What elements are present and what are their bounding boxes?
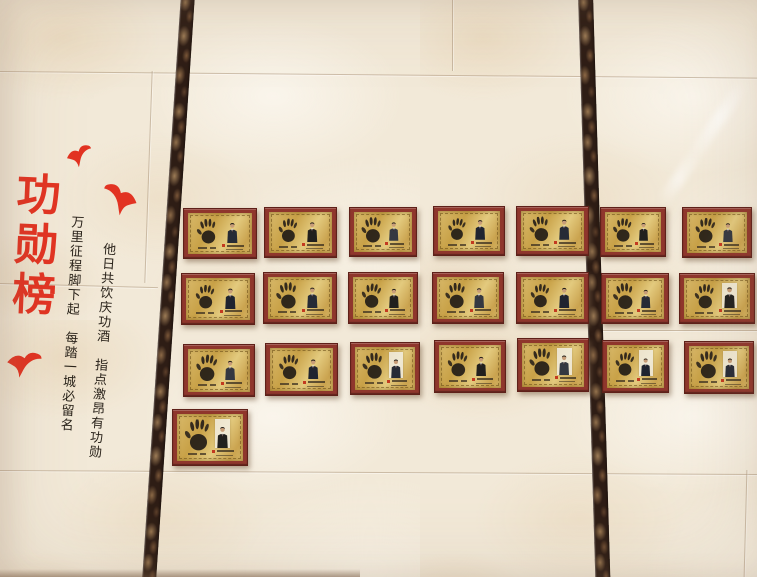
gold-plate	[689, 346, 749, 389]
member-photo	[304, 282, 319, 308]
handprint-icon	[275, 218, 302, 245]
handprint-plaque	[601, 273, 669, 324]
member-photo	[215, 419, 230, 448]
red-mark	[387, 380, 390, 383]
handprint-plaque	[350, 342, 420, 395]
handprint-icon	[694, 351, 721, 382]
red-mark	[302, 243, 305, 246]
tile-glare	[657, 77, 751, 207]
handprint-icon	[360, 352, 388, 383]
hand-caption-text	[616, 380, 634, 382]
red-mark	[635, 242, 638, 245]
gold-plate	[437, 277, 499, 319]
handprint-icon	[358, 282, 385, 311]
gold-plate	[605, 212, 661, 252]
handprint-plaque	[600, 207, 666, 257]
member-photo	[387, 282, 401, 308]
member-photo	[224, 218, 239, 243]
red-mark	[719, 309, 722, 312]
handprint-icon	[193, 217, 223, 247]
handprint-icon	[182, 419, 212, 453]
red-bird-icon	[98, 180, 141, 218]
member-photo	[639, 283, 652, 308]
handprint-icon	[691, 284, 719, 311]
handprint-icon	[692, 217, 719, 246]
red-mark	[637, 309, 640, 312]
member-photo	[222, 283, 237, 309]
member-photo	[474, 350, 488, 377]
photo-caption-text	[719, 309, 741, 315]
hand-caption-text	[699, 381, 717, 383]
handprint-plaque	[433, 206, 505, 256]
photo-caption-text	[222, 244, 244, 250]
hand-caption-text	[278, 311, 296, 313]
photo-caption-text	[721, 379, 741, 385]
member-photo	[721, 217, 735, 242]
tile-seam	[744, 470, 748, 577]
member-photo	[305, 217, 319, 242]
member-photo	[389, 352, 403, 379]
red-bird-icon	[5, 348, 44, 380]
hand-caption-text	[198, 247, 216, 249]
photo-caption-text	[554, 309, 575, 315]
gold-plate	[438, 211, 500, 251]
gold-plate	[188, 349, 250, 392]
photo-caption-text	[554, 241, 575, 247]
handprint-plaque	[265, 343, 338, 396]
hand-caption-text	[196, 312, 214, 314]
gold-plate	[269, 212, 332, 253]
photo-caption-text	[385, 309, 405, 315]
hand-caption-text	[448, 244, 466, 246]
tile-seam	[590, 330, 757, 331]
handprint-plaque	[602, 340, 669, 393]
red-mark	[222, 244, 225, 247]
photo-caption-text	[385, 242, 405, 248]
red-mark	[721, 379, 724, 382]
member-photo	[557, 348, 571, 375]
photo-caption-text	[637, 309, 657, 315]
hand-caption-text	[449, 380, 467, 382]
couplet-left-column: 万里征程脚下起 每踏一城必留名	[58, 215, 82, 435]
red-mark	[555, 376, 558, 379]
handprint-icon	[527, 348, 556, 380]
gold-plate	[521, 211, 584, 251]
handprint-plaque	[684, 341, 754, 394]
red-mark	[385, 309, 388, 312]
handprint-icon	[525, 215, 555, 245]
gold-plate	[522, 343, 584, 387]
hand-caption-text	[279, 246, 297, 248]
photo-caption-text	[555, 376, 576, 382]
gold-plate	[687, 212, 747, 253]
handprint-plaque	[682, 207, 752, 258]
hand-caption-text	[363, 245, 381, 247]
member-photo	[723, 351, 737, 378]
gold-plate	[355, 347, 415, 390]
hand-caption-text	[531, 311, 549, 313]
photo-caption-text	[303, 381, 324, 387]
red-mark	[385, 242, 388, 245]
gold-plate	[353, 277, 413, 319]
handprint-icon	[610, 282, 639, 313]
handprint-icon	[273, 281, 303, 312]
member-photo	[306, 353, 320, 380]
red-mark	[470, 309, 473, 312]
member-photo	[557, 215, 571, 240]
hand-caption-text	[363, 311, 381, 313]
handprint-icon	[445, 351, 471, 380]
handprint-plaque	[263, 272, 337, 324]
red-mark	[303, 381, 306, 384]
photo-caption-text	[212, 450, 234, 456]
red-mark	[471, 241, 474, 244]
photo-caption-text	[637, 378, 656, 384]
handprint-icon	[443, 282, 470, 311]
handprint-icon	[611, 218, 635, 244]
hand-caption-text	[365, 382, 383, 384]
handprint-plaque	[348, 272, 418, 324]
gold-plate	[186, 278, 250, 320]
gold-plate	[439, 345, 501, 388]
member-photo	[387, 216, 400, 241]
photo-caption-text	[221, 382, 242, 388]
gold-plate	[177, 414, 243, 461]
photo-caption-text	[220, 310, 242, 316]
member-photo	[639, 350, 652, 377]
red-mark	[221, 382, 224, 385]
tile-seam	[452, 0, 453, 71]
hand-caption-text	[614, 245, 632, 247]
hand-caption-text	[615, 312, 633, 314]
gold-plate	[606, 278, 664, 319]
gold-plate	[354, 212, 412, 252]
hand-caption-text	[531, 244, 549, 246]
tile-seam	[0, 470, 757, 475]
gold-plate	[607, 345, 664, 388]
hand-caption-text	[447, 311, 465, 313]
red-mark	[637, 378, 640, 381]
gold-plate	[521, 277, 584, 319]
member-photo	[472, 282, 486, 308]
handprint-icon	[613, 351, 637, 379]
handprint-plaque	[349, 207, 417, 257]
handprint-plaque	[517, 338, 589, 392]
member-photo	[223, 354, 237, 381]
red-mark	[220, 310, 223, 313]
red-bird-icon	[64, 143, 94, 169]
handprint-plaque	[172, 409, 248, 466]
photo-caption-text	[635, 242, 654, 248]
red-mark	[472, 378, 475, 381]
handprint-icon	[277, 354, 303, 382]
handprint-plaque	[181, 273, 255, 325]
member-photo	[722, 283, 737, 308]
hand-caption-text	[695, 312, 713, 314]
handprint-plaque	[516, 272, 589, 324]
handprint-plaque	[183, 344, 255, 397]
honor-wall-photo: 功勋榜 他日共饮庆功酒 指点激昂有功勋 万里征程脚下起 每踏一城必留名	[0, 0, 757, 577]
red-mark	[554, 241, 557, 244]
photo-caption-text	[387, 380, 407, 386]
floor-shadow	[0, 569, 360, 577]
red-mark	[302, 309, 305, 312]
photo-caption-text	[302, 243, 323, 249]
handprint-plaque	[183, 208, 257, 259]
photo-caption-text	[470, 309, 491, 315]
member-photo	[637, 216, 650, 241]
red-mark	[554, 309, 557, 312]
handprint-plaque	[516, 206, 589, 256]
couplet-right-column: 他日共饮庆功酒 指点激昂有功勋	[86, 242, 114, 462]
hand-caption-text	[697, 246, 715, 248]
photo-caption-text	[719, 243, 739, 249]
wall-title: 功勋榜	[5, 170, 56, 340]
handprint-icon	[193, 284, 219, 311]
gold-plate	[270, 348, 333, 391]
handprint-plaque	[434, 340, 506, 393]
hand-caption-text	[188, 453, 206, 455]
handprint-icon	[358, 216, 385, 245]
photo-caption-text	[302, 309, 324, 315]
photo-caption-text	[471, 241, 492, 247]
gold-plate	[268, 277, 332, 319]
gold-plate	[684, 278, 750, 319]
hand-caption-text	[198, 384, 216, 386]
photo-caption-text	[472, 378, 493, 384]
red-mark	[212, 450, 215, 453]
handprint-icon	[444, 217, 470, 243]
handprint-plaque	[264, 207, 337, 258]
hand-caption-text	[532, 379, 550, 381]
handprint-icon	[527, 283, 553, 310]
member-photo	[557, 282, 571, 308]
handprint-plaque	[432, 272, 504, 324]
tile-seam	[0, 71, 757, 79]
member-photo	[473, 215, 487, 240]
handprint-icon	[193, 354, 222, 385]
handprint-plaque	[679, 273, 755, 324]
red-mark	[719, 243, 722, 246]
gold-plate	[188, 213, 252, 254]
tile-seam	[144, 71, 152, 283]
hand-caption-text	[280, 383, 298, 385]
